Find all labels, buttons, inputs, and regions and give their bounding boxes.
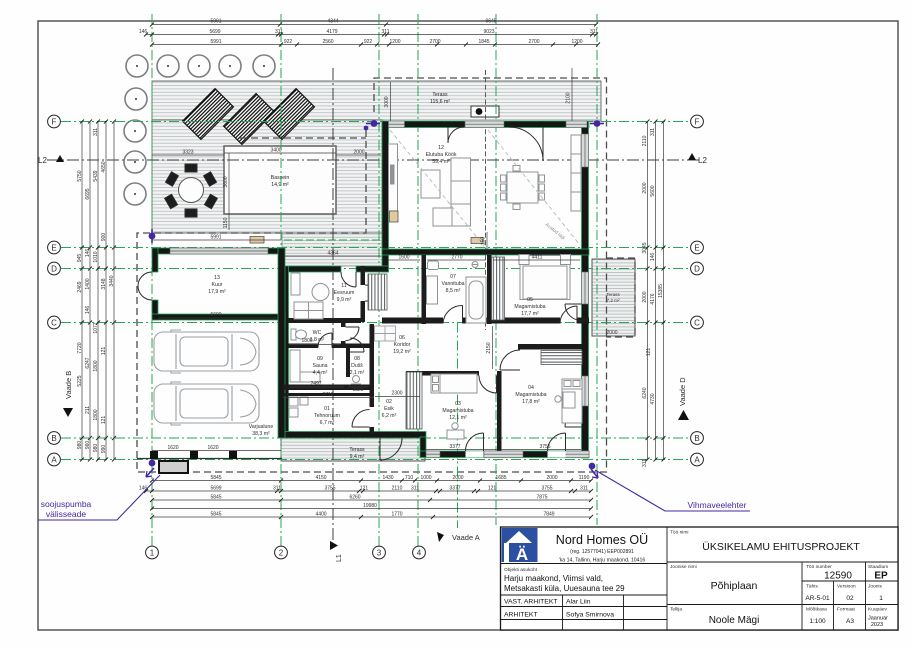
svg-text:Mõõtkava: Mõõtkava	[806, 607, 827, 613]
svg-text:C: C	[51, 319, 57, 328]
svg-text:Metsakasti küla, Uuesauna tee: Metsakasti küla, Uuesauna tee 29	[504, 584, 625, 593]
svg-text:59,4 m²: 59,4 m²	[432, 159, 450, 165]
svg-text:F: F	[695, 118, 700, 127]
svg-text:2: 2	[279, 549, 284, 558]
svg-text:3755: 3755	[539, 444, 550, 450]
svg-text:311: 311	[642, 459, 648, 467]
svg-text:1620: 1620	[207, 445, 218, 451]
svg-text:Sauna: Sauna	[312, 363, 327, 369]
svg-text:Varjualune: Varjualune	[249, 424, 274, 430]
svg-text:04: 04	[528, 385, 534, 391]
svg-text:7,2 m²: 7,2 m²	[606, 298, 619, 303]
svg-text:3377: 3377	[449, 486, 460, 492]
svg-text:06: 06	[399, 335, 405, 341]
svg-text:soojuspumba: soojuspumba	[41, 499, 92, 509]
svg-text:(reg. 12577041) EEP002891: (reg. 12577041) EEP002891	[570, 549, 634, 555]
svg-text:1010: 1010	[93, 251, 99, 262]
svg-text:Vaade B: Vaade B	[64, 371, 73, 399]
svg-text:115,6 m²: 115,6 m²	[430, 99, 450, 105]
svg-text:1400: 1400	[85, 278, 91, 289]
svg-text:1200: 1200	[389, 39, 400, 45]
svg-text:Terass: Terass	[606, 292, 620, 297]
svg-text:4150: 4150	[315, 475, 326, 481]
svg-text:2300: 2300	[391, 391, 402, 397]
svg-text:2000: 2000	[606, 330, 617, 336]
svg-text:Objekti asukoht: Objekti asukoht	[504, 567, 538, 573]
svg-text:Magamistuba: Magamistuba	[442, 408, 473, 414]
svg-text:L1: L1	[336, 554, 343, 562]
svg-text:1770: 1770	[391, 512, 402, 518]
svg-text:5750: 5750	[77, 170, 83, 181]
svg-text:311: 311	[382, 29, 390, 35]
svg-text:Koridor: Koridor	[394, 342, 411, 348]
svg-text:AR-5-01: AR-5-01	[805, 595, 830, 602]
svg-text:13: 13	[214, 275, 220, 281]
svg-text:2110: 2110	[392, 486, 403, 492]
svg-text:2560: 2560	[322, 39, 333, 45]
svg-text:5699: 5699	[209, 29, 220, 35]
svg-text:4400: 4400	[315, 512, 326, 518]
svg-text:2023: 2023	[871, 622, 883, 628]
svg-text:Eesruum: Eesruum	[334, 290, 355, 296]
svg-text:4: 4	[417, 549, 422, 558]
svg-text:02: 02	[386, 399, 392, 405]
svg-text:4,4 m²: 4,4 m²	[313, 370, 328, 376]
svg-text:17,7 m²: 17,7 m²	[521, 311, 539, 317]
svg-text:12590: 12590	[824, 571, 852, 582]
svg-text:Vannituba: Vannituba	[442, 281, 465, 287]
svg-text:'ka 14, Tallinn, Harju maakond: 'ka 14, Tallinn, Harju maakond, 10416	[559, 558, 646, 564]
svg-text:Joonis: Joonis	[868, 584, 882, 590]
svg-text:5991: 5991	[210, 39, 221, 45]
svg-text:38,3 m²: 38,3 m²	[252, 431, 270, 437]
svg-text:7849: 7849	[543, 512, 554, 518]
svg-text:14,9 m²: 14,9 m²	[271, 182, 289, 188]
svg-text:02: 02	[846, 595, 854, 602]
svg-text:5845: 5845	[210, 512, 221, 518]
svg-text:19,2 m²: 19,2 m²	[393, 349, 411, 355]
svg-text:2700: 2700	[429, 39, 440, 45]
svg-text:Magamistuba: Magamistuba	[514, 304, 545, 310]
svg-text:9,9 m²: 9,9 m²	[337, 297, 352, 303]
svg-text:3148: 3148	[101, 278, 107, 289]
svg-text:5845: 5845	[210, 495, 221, 501]
svg-text:1800: 1800	[301, 338, 312, 344]
svg-text:03: 03	[455, 401, 461, 407]
svg-text:Töö nimi: Töö nimi	[670, 530, 688, 536]
svg-text:Kuupäev: Kuupäev	[868, 607, 888, 613]
svg-text:1685: 1685	[495, 475, 506, 481]
svg-text:2150: 2150	[486, 342, 492, 353]
svg-text:Vaade D: Vaade D	[678, 377, 687, 406]
svg-text:Terass: Terass	[349, 447, 365, 453]
svg-text:121: 121	[646, 348, 652, 357]
svg-text:5690: 5690	[210, 312, 221, 318]
svg-text:121: 121	[488, 486, 497, 492]
svg-text:L2: L2	[698, 156, 707, 165]
svg-text:1600: 1600	[398, 255, 409, 261]
svg-text:6260: 6260	[349, 495, 360, 501]
svg-text:01: 01	[324, 406, 330, 412]
svg-text:2497: 2497	[310, 381, 321, 387]
svg-text:3755: 3755	[324, 486, 335, 492]
svg-text:Noole Mägi: Noole Mägi	[709, 615, 760, 626]
svg-text:2770: 2770	[451, 255, 462, 261]
svg-text:3755: 3755	[541, 486, 552, 492]
svg-text:1190: 1190	[579, 475, 590, 481]
svg-text:4411: 4411	[532, 255, 543, 261]
svg-text:A: A	[694, 456, 700, 465]
svg-text:6247: 6247	[85, 357, 91, 368]
svg-text:2000: 2000	[353, 150, 364, 156]
svg-text:2700: 2700	[528, 39, 539, 45]
svg-text:15385: 15385	[658, 284, 664, 298]
svg-text:6,7 m²: 6,7 m²	[320, 420, 335, 426]
svg-text:E: E	[694, 244, 699, 253]
svg-text:6,2 m²: 6,2 m²	[382, 413, 397, 419]
svg-text:Kuur: Kuur	[212, 282, 223, 288]
svg-text:5699: 5699	[210, 486, 221, 492]
svg-text:C: C	[694, 319, 700, 328]
svg-text:Tähis: Tähis	[806, 584, 818, 590]
svg-text:9645: 9645	[485, 19, 496, 25]
svg-text:945: 945	[77, 254, 83, 263]
svg-text:Põhiplaan: Põhiplaan	[711, 580, 758, 592]
svg-text:146: 146	[139, 29, 148, 35]
svg-text:07: 07	[450, 274, 456, 280]
svg-text:2000: 2000	[642, 182, 648, 193]
svg-text:17,8 m²: 17,8 m²	[522, 399, 540, 405]
svg-text:Dušš: Dušš	[351, 363, 363, 369]
svg-text:1430: 1430	[382, 475, 393, 481]
svg-text:EP: EP	[874, 571, 888, 582]
svg-text:1845: 1845	[478, 39, 489, 45]
svg-text:12: 12	[438, 145, 444, 151]
svg-text:2000: 2000	[452, 475, 463, 481]
svg-text:146: 146	[85, 249, 91, 258]
svg-text:5225: 5225	[77, 375, 83, 386]
svg-text:311: 311	[580, 486, 588, 492]
svg-text:Esik: Esik	[384, 406, 394, 412]
svg-text:960: 960	[85, 441, 91, 450]
svg-text:311: 311	[411, 486, 419, 492]
svg-text:4650: 4650	[101, 161, 107, 172]
svg-text:08: 08	[354, 356, 360, 362]
svg-text:Vaade A: Vaade A	[452, 533, 480, 542]
svg-text:A: A	[51, 456, 57, 465]
svg-text:09: 09	[317, 356, 323, 362]
svg-text:ARHITEKT: ARHITEKT	[504, 612, 538, 619]
svg-text:D: D	[694, 265, 700, 274]
svg-text:F: F	[52, 118, 57, 127]
svg-text:3400: 3400	[270, 148, 281, 154]
svg-text:L2: L2	[38, 156, 47, 165]
svg-text:8,5 m²: 8,5 m²	[446, 288, 461, 294]
svg-text:Sofya Smirnova: Sofya Smirnova	[566, 612, 614, 619]
svg-text:6240: 6240	[642, 387, 648, 398]
svg-text:311: 311	[273, 486, 281, 492]
svg-text:2100: 2100	[566, 92, 572, 103]
svg-text:Formaat: Formaat	[837, 607, 856, 613]
svg-text:1620: 1620	[167, 445, 178, 451]
svg-text:3440: 3440	[109, 275, 115, 286]
svg-text:150: 150	[481, 237, 487, 246]
svg-text:Vihmaveelehter: Vihmaveelehter	[688, 500, 747, 510]
svg-text:E: E	[51, 244, 56, 253]
svg-text:121: 121	[101, 347, 107, 356]
svg-text:1200: 1200	[571, 39, 582, 45]
svg-text:1000: 1000	[420, 475, 431, 481]
svg-text:19980: 19980	[363, 503, 377, 509]
svg-text:922: 922	[284, 39, 293, 45]
svg-text:4179: 4179	[326, 29, 337, 35]
svg-text:Terass: Terass	[432, 92, 448, 98]
svg-text:311: 311	[93, 128, 99, 136]
svg-text:ÜKSIKELAMU EHITUSPROJEKT: ÜKSIKELAMU EHITUSPROJEKT	[702, 541, 860, 553]
svg-text:Tehnoruum: Tehnoruum	[314, 413, 340, 419]
svg-text:311: 311	[650, 128, 656, 136]
svg-text:Harju maakond, Viimsi vald,: Harju maakond, Viimsi vald,	[504, 574, 603, 583]
svg-text:3000: 3000	[384, 96, 390, 107]
svg-text:Elutuba Köök: Elutuba Köök	[426, 152, 457, 158]
svg-text:D: D	[51, 265, 57, 274]
svg-text:922: 922	[364, 39, 373, 45]
svg-text:4176: 4176	[650, 293, 656, 304]
svg-text:146: 146	[139, 486, 148, 492]
svg-text:710: 710	[405, 475, 414, 481]
svg-text:1800: 1800	[93, 360, 99, 371]
svg-text:B: B	[694, 434, 699, 443]
svg-text:11: 11	[341, 283, 346, 289]
svg-text:980: 980	[93, 444, 99, 453]
svg-text:WC: WC	[313, 330, 322, 336]
svg-text:5600: 5600	[650, 185, 656, 196]
svg-text:311: 311	[590, 29, 598, 35]
svg-text:2110: 2110	[642, 135, 648, 146]
svg-text:1:100: 1:100	[809, 618, 826, 625]
svg-text:5991: 5991	[210, 19, 221, 25]
svg-text:4344: 4344	[327, 19, 338, 25]
svg-text:146: 146	[650, 253, 656, 262]
svg-text:5439: 5439	[93, 170, 99, 181]
svg-text:Bassein: Bassein	[271, 175, 290, 181]
svg-text:980: 980	[77, 441, 83, 450]
svg-text:Töö number: Töö number	[806, 564, 832, 570]
svg-text:3323: 3323	[182, 150, 193, 156]
svg-text:3600: 3600	[223, 176, 229, 187]
svg-text:3718: 3718	[322, 392, 333, 398]
svg-text:4730: 4730	[650, 393, 656, 404]
svg-text:Ä: Ä	[516, 545, 528, 564]
svg-text:5991: 5991	[210, 235, 221, 241]
svg-text:211: 211	[85, 406, 91, 414]
svg-text:1800: 1800	[93, 409, 99, 420]
svg-text:5845: 5845	[210, 475, 221, 481]
svg-text:900: 900	[101, 233, 107, 242]
svg-text:12,1 m²: 12,1 m²	[449, 415, 467, 421]
svg-text:3377: 3377	[449, 444, 460, 450]
svg-text:VAST. ARHITEKT: VAST. ARHITEKT	[504, 599, 558, 606]
svg-text:146: 146	[85, 306, 91, 315]
svg-text:Tellija: Tellija	[670, 607, 682, 613]
svg-text:311: 311	[275, 29, 283, 35]
svg-text:Staadium: Staadium	[868, 564, 888, 570]
svg-text:2469: 2469	[77, 281, 83, 292]
svg-text:Magamistuba: Magamistuba	[515, 392, 546, 398]
svg-text:17,9 m²: 17,9 m²	[208, 289, 226, 295]
svg-text:B: B	[51, 434, 56, 443]
svg-text:6695: 6695	[85, 188, 91, 199]
svg-text:7875: 7875	[536, 495, 547, 501]
svg-text:1: 1	[879, 595, 883, 602]
svg-text:Alar Liin: Alar Liin	[566, 599, 591, 606]
svg-text:05: 05	[527, 297, 533, 303]
svg-text:9023: 9023	[483, 29, 494, 35]
svg-text:1150: 1150	[223, 217, 229, 228]
svg-text:990: 990	[101, 445, 107, 454]
svg-text:Versioon: Versioon	[837, 584, 856, 590]
svg-text:121: 121	[101, 416, 107, 425]
svg-text:1820: 1820	[352, 387, 363, 393]
svg-text:2000: 2000	[546, 475, 557, 481]
svg-text:A3: A3	[846, 618, 854, 625]
svg-text:3: 3	[377, 549, 382, 558]
svg-text:121: 121	[360, 486, 369, 492]
svg-text:Jaanuar: Jaanuar	[868, 616, 888, 622]
svg-text:1072: 1072	[93, 322, 99, 333]
svg-text:2,1 m²: 2,1 m²	[350, 370, 365, 376]
svg-text:Joonise nimi: Joonise nimi	[670, 564, 697, 570]
svg-text:4364: 4364	[327, 251, 338, 257]
svg-text:7720: 7720	[77, 342, 83, 353]
svg-text:välisseade: välisseade	[46, 509, 86, 519]
svg-text:3045: 3045	[642, 242, 648, 253]
svg-text:2000: 2000	[642, 291, 648, 302]
svg-text:Nord Homes OÜ: Nord Homes OÜ	[556, 533, 648, 547]
svg-text:1: 1	[150, 549, 155, 558]
